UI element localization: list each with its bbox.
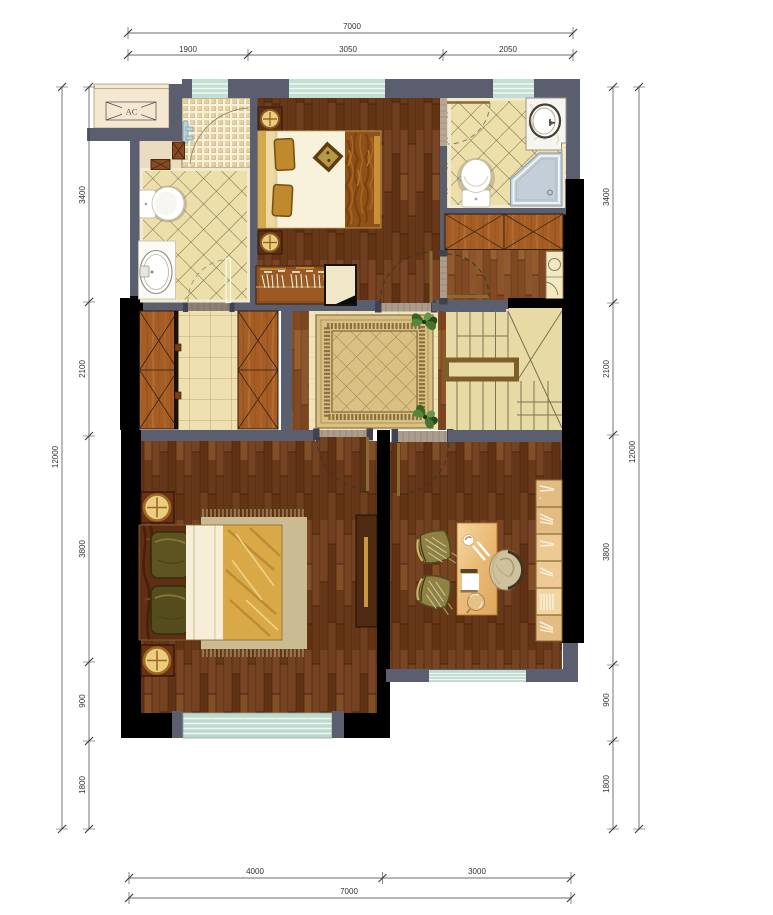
svg-text:1800: 1800 <box>602 775 611 793</box>
svg-text:900: 900 <box>78 694 87 708</box>
svg-text:2100: 2100 <box>602 360 611 378</box>
svg-text:3400: 3400 <box>78 186 87 204</box>
svg-text:12000: 12000 <box>51 445 60 468</box>
svg-text:4000: 4000 <box>246 867 264 876</box>
svg-text:1800: 1800 <box>78 776 87 794</box>
svg-text:AC: AC <box>126 107 138 117</box>
svg-text:12000: 12000 <box>628 440 637 463</box>
svg-text:2100: 2100 <box>78 360 87 378</box>
svg-text:3800: 3800 <box>602 543 611 561</box>
svg-text:3000: 3000 <box>468 867 486 876</box>
svg-text:3050: 3050 <box>339 45 357 54</box>
svg-text:900: 900 <box>602 693 611 707</box>
svg-text:7000: 7000 <box>343 22 361 31</box>
svg-text:7000: 7000 <box>340 887 358 896</box>
svg-text:3400: 3400 <box>602 188 611 206</box>
svg-text:1900: 1900 <box>179 45 197 54</box>
svg-text:3800: 3800 <box>78 540 87 558</box>
svg-text:2050: 2050 <box>499 45 517 54</box>
